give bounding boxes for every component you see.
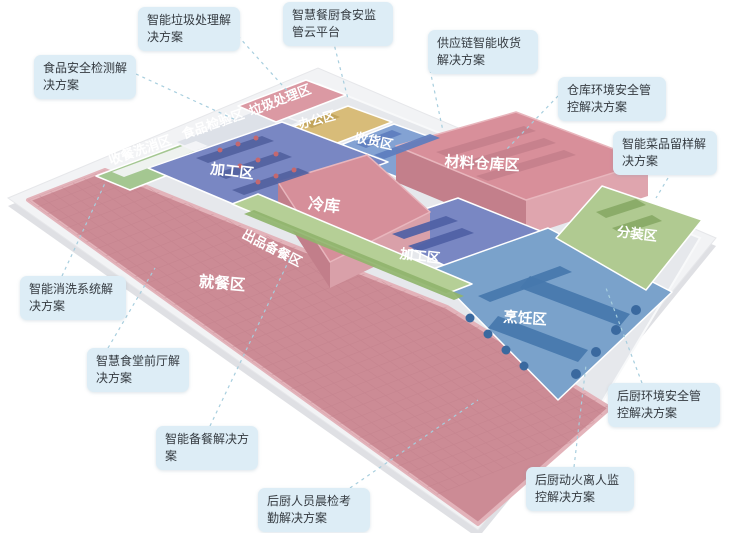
- callout-food-safety-testing: 食品安全检测解决方案: [34, 55, 136, 99]
- callout-dish-sample-retention: 智能菜品留样解决方案: [613, 131, 717, 175]
- callout-meal-preparation: 智能备餐解决方案: [156, 426, 258, 470]
- callout-washing-system: 智能消洗系统解决方案: [20, 276, 126, 320]
- callout-layer: 智能垃圾处理解决方案智慧餐厨食安监管云平台供应链智能收货解决方案食品安全检测解决…: [0, 0, 745, 533]
- callout-cloud-platform: 智慧餐厨食安监管云平台: [283, 2, 393, 46]
- callout-kitchen-env-safety: 后厨环境安全管控解决方案: [608, 383, 720, 427]
- callout-waste-treatment-solution: 智能垃圾处理解决方案: [138, 7, 240, 51]
- smart-canteen-floorplan-diagram: 就餐区收餐洗消区食品检验区垃圾处理区办公区收货区加工区材料仓库区加工区冷库烹饪区…: [0, 0, 745, 533]
- callout-supply-chain-receiving: 供应链智能收货解决方案: [428, 30, 538, 74]
- callout-front-hall: 智慧食堂前厅解决方案: [87, 348, 189, 392]
- callout-staff-morning-check: 后厨人员晨检考勤解决方案: [258, 488, 370, 532]
- callout-warehouse-env-safety: 仓库环境安全管控解决方案: [558, 77, 666, 121]
- callout-fire-unattended-monitoring: 后厨动火离人监控解决方案: [526, 467, 634, 511]
